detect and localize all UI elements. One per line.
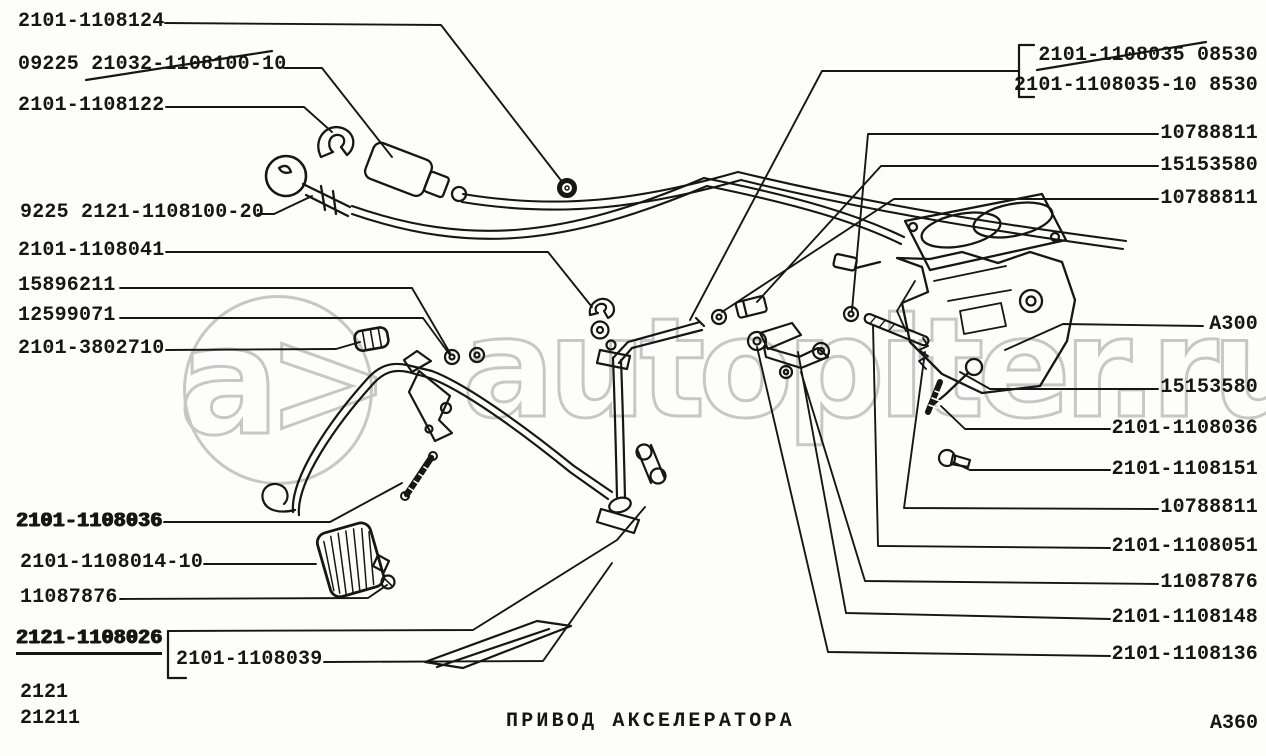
leader-lines-right (690, 71, 1203, 656)
part-bushing (354, 326, 390, 351)
part-nut (470, 348, 484, 362)
part-number-label: 2101-1108051 (1112, 537, 1258, 557)
part-number-label: 9225 2121-1108100-20 (20, 203, 264, 223)
sheet-title: ПРИВОД АКСЕЛЕРАТОРА (506, 712, 795, 732)
part-pedal-rod (262, 326, 612, 515)
part-number-label: 11087876 (20, 588, 118, 608)
part-number-label: 2101-1108035-10 8530 (1014, 76, 1258, 96)
part-number-label: 10788811 (1160, 189, 1258, 209)
cable-grommet (560, 181, 575, 196)
part-number-label: 2101-1108136 (1112, 645, 1258, 665)
part-washer (712, 310, 726, 324)
part-number-label: 15896211 (18, 276, 116, 296)
part-number-label: 2121-1108026 (16, 629, 162, 655)
part-clip (592, 322, 609, 339)
part-number-label: 2101-1108122 (18, 96, 164, 116)
part-pedal-and-springs (315, 382, 970, 668)
part-number-label: A300 (1209, 315, 1258, 335)
part-number-label: 2101-1108014-10 (20, 553, 203, 573)
cable-clip (318, 127, 353, 157)
part-number-label: 2101-1108036 (16, 512, 162, 532)
part-number-label: 2101-1108148 (1112, 608, 1258, 628)
part-number-label: 15153580 (1160, 156, 1258, 176)
part-nut (445, 350, 459, 364)
sheet-code: A360 (1210, 714, 1258, 734)
part-number-label: 10788811 (1160, 498, 1258, 518)
cable-knob (266, 156, 306, 196)
part-number-label: 2101-1108041 (18, 241, 164, 261)
part-number-label: 2101-1108036 (1112, 419, 1258, 439)
model-code-1: 2121 (20, 683, 68, 703)
model-code-2: 21211 (20, 709, 80, 729)
part-carburetor (833, 194, 1075, 404)
part-bellcrank-cluster (712, 296, 930, 378)
part-number-label: 2101-1108124 (18, 12, 164, 32)
part-number-label: 2101-1108035 08530 (1038, 46, 1258, 66)
part-washer (844, 307, 858, 321)
diagram-artwork (0, 0, 1266, 756)
catalog-diagram-page: a> autopiter.ru (0, 0, 1266, 756)
part-number-label: 2101-1108039 (176, 650, 322, 670)
pedal-rod-hook (262, 484, 295, 512)
part-number-label: 2101-3802710 (18, 339, 164, 359)
part-number-label: 10788811 (1160, 124, 1258, 144)
part-number-label: 09225 21032-1108100-10 (18, 55, 286, 75)
part-number-label: 2101-1108151 (1112, 460, 1258, 480)
part-number-label: 12599071 (18, 306, 116, 326)
part-washer (780, 366, 792, 378)
part-number-label: 11087876 (1160, 573, 1258, 593)
part-number-label: 15153580 (1160, 378, 1258, 398)
